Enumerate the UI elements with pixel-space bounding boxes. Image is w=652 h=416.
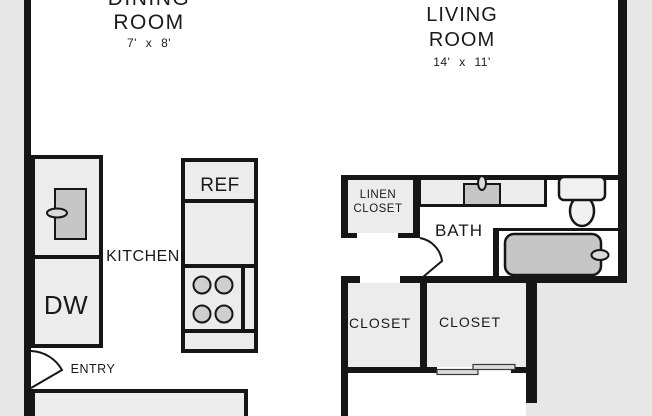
wall-right-outer <box>618 0 627 283</box>
floor-plan-drawing <box>0 0 652 416</box>
floor-plan: DINING ROOM 7' x 8' LIVING ROOM 14' x 11… <box>0 0 652 416</box>
stove-bottom-divider <box>183 329 256 333</box>
sliding-door-panel <box>473 365 515 370</box>
wall-left-outer <box>24 0 31 416</box>
dining-room-title: DINING ROOM <box>108 0 191 35</box>
bathtub-icon <box>505 234 601 275</box>
linen-closet-label-line2: CLOSET <box>353 203 402 217</box>
linen-closet-label: LINEN CLOSET <box>353 189 402 216</box>
burner-icon <box>194 306 211 323</box>
burner-icon <box>194 277 211 294</box>
wall-closet-bottom-left <box>341 367 437 373</box>
tub-drain-icon <box>592 250 609 260</box>
dining-room-title-line1: DINING <box>108 0 191 11</box>
ref-bottom-divider <box>183 199 256 203</box>
vanity-faucet-icon <box>478 176 486 190</box>
living-room-dimensions: 14' x 11' <box>433 55 491 69</box>
wall-right-lower <box>526 283 537 403</box>
entry-label: ENTRY <box>71 362 116 376</box>
stove-side-divider <box>241 264 245 333</box>
wall-linen-closet-left <box>341 175 348 238</box>
closet-left-door-opening <box>360 276 400 283</box>
burner-icon <box>216 277 233 294</box>
kitchen-faucet-icon <box>47 209 67 218</box>
dishwasher-label: DW <box>44 290 88 321</box>
refrigerator-label: REF <box>200 175 240 197</box>
dining-room-title-line2: ROOM <box>108 11 191 35</box>
wall-tub-left <box>493 228 499 276</box>
dining-room-dimensions: 7' x 8' <box>127 36 171 50</box>
wall-closet-divider <box>420 283 427 367</box>
wall-tub-top <box>493 228 627 231</box>
wall-linen-door-stub-left <box>341 233 357 238</box>
bottom-left-cabinet <box>33 391 246 416</box>
living-room-title: LIVING ROOM <box>426 3 498 53</box>
closet-left-label: CLOSET <box>349 315 411 331</box>
toilet-tank <box>559 177 605 200</box>
burner-icon <box>216 306 233 323</box>
living-room-title-line2: ROOM <box>426 28 498 53</box>
bath-label: BATH <box>435 221 483 241</box>
sliding-door-panel <box>437 370 478 375</box>
kitchen-label: KITCHEN <box>106 248 180 266</box>
wall-closets-left <box>341 283 348 416</box>
stove-top-divider <box>183 264 256 268</box>
linen-closet-label-line1: LINEN <box>353 189 402 203</box>
kitchen-counter-divider <box>33 255 101 259</box>
wall-linen-door-stub-right <box>398 233 420 238</box>
living-room-title-line1: LIVING <box>426 3 498 28</box>
closet-right-label: CLOSET <box>439 314 501 330</box>
